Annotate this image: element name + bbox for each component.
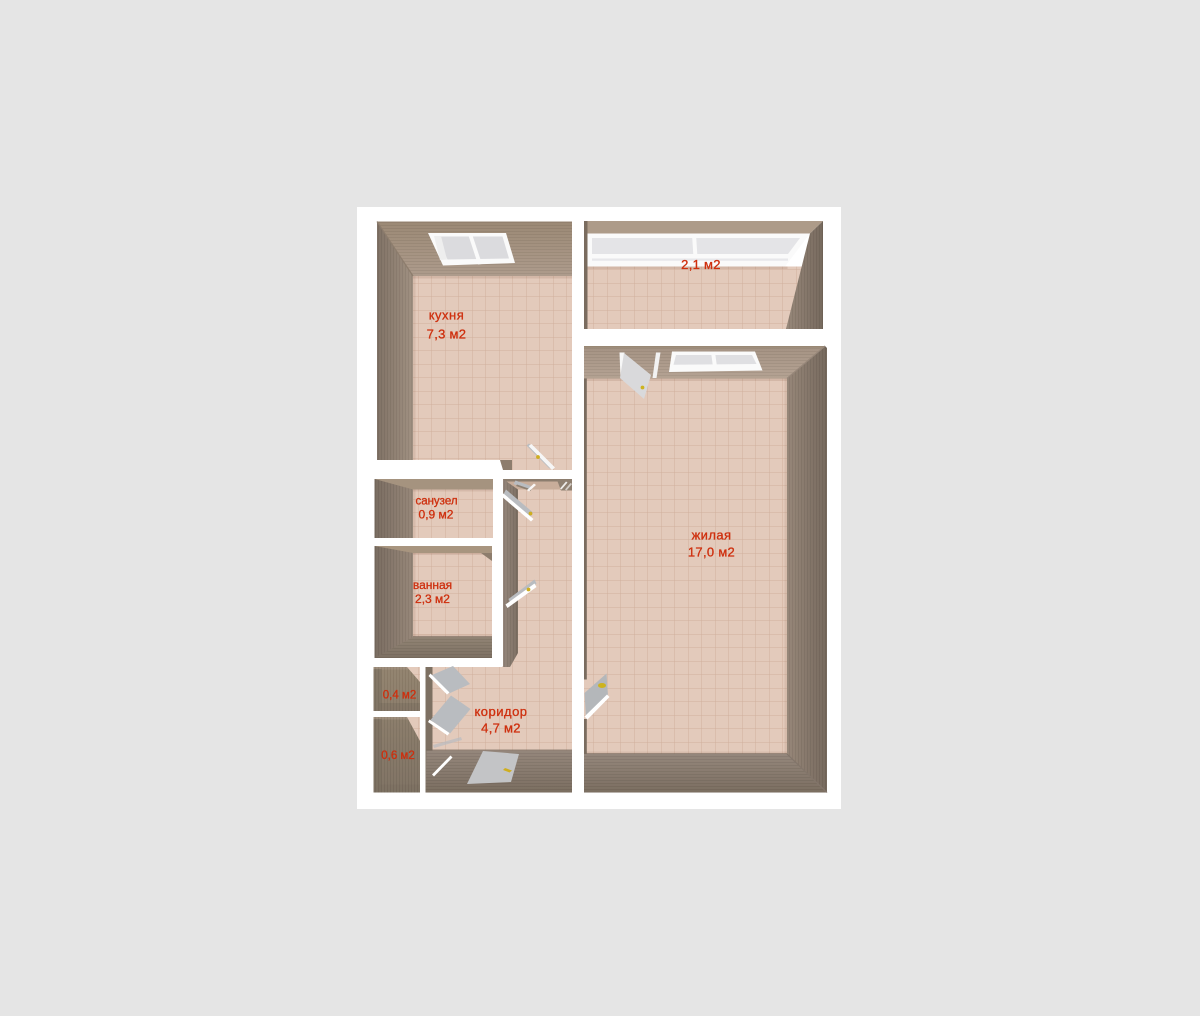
svg-text:2,3 м2: 2,3 м2 [415, 592, 450, 606]
svg-text:0,4 м2: 0,4 м2 [383, 690, 416, 702]
svg-text:4,7 м2: 4,7 м2 [481, 721, 521, 736]
svg-text:0,6 м2: 0,6 м2 [381, 750, 414, 762]
svg-text:2,1 м2: 2,1 м2 [681, 257, 721, 272]
svg-text:ванная: ванная [413, 578, 452, 592]
svg-text:санузел: санузел [415, 496, 457, 508]
svg-text:17,0 м2: 17,0 м2 [688, 545, 735, 560]
svg-text:жилая: жилая [692, 528, 732, 543]
svg-text:коридор: коридор [474, 704, 527, 719]
svg-text:7,3 м2: 7,3 м2 [427, 327, 467, 342]
svg-text:0,9 м2: 0,9 м2 [419, 508, 454, 522]
svg-text:кухня: кухня [429, 308, 465, 323]
